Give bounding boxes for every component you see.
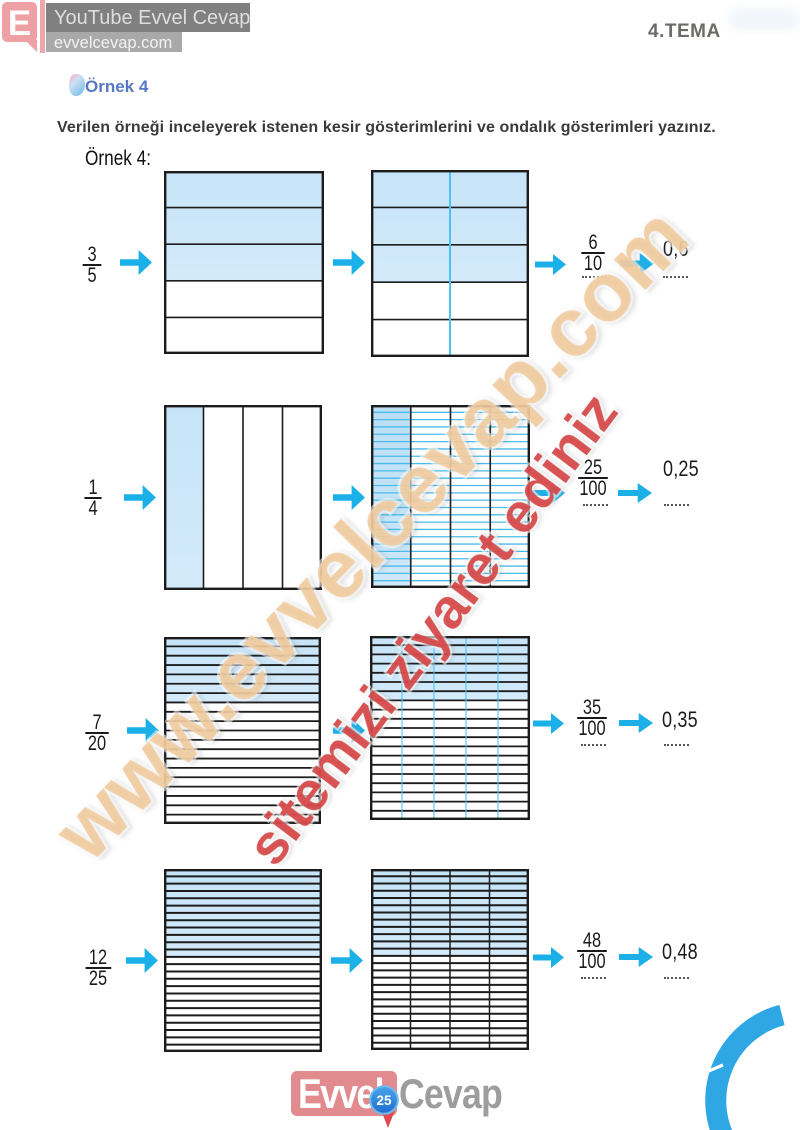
svg-text:25: 25 <box>376 1093 392 1108</box>
